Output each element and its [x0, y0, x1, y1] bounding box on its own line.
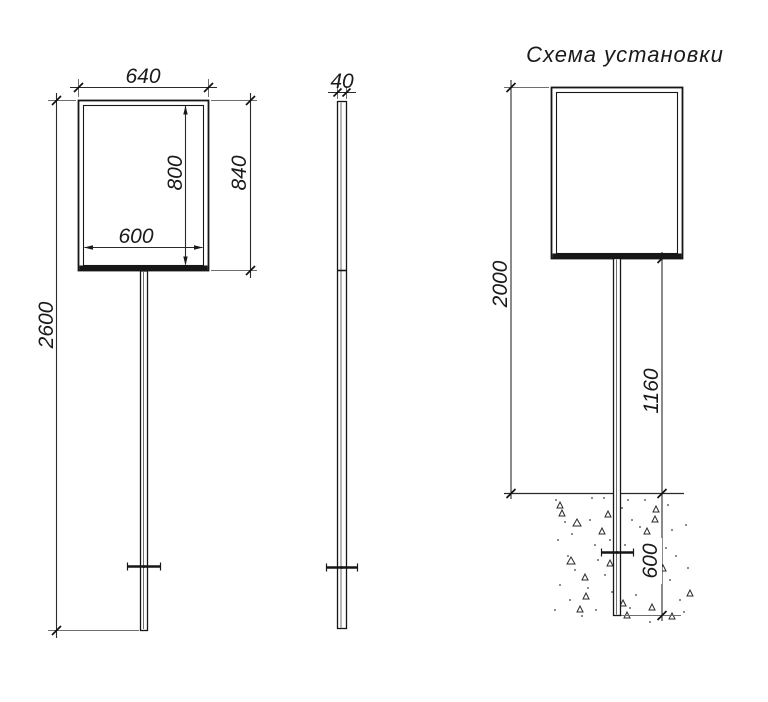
installation-view: Схема установки [489, 42, 724, 623]
dim-label-height-outer: 840 [228, 155, 251, 190]
dim-label-embedment-depth: 600 [639, 543, 662, 578]
installation-frame-bottom-band [553, 254, 682, 259]
front-dimension-ticks [52, 83, 255, 635]
side-profile [338, 102, 347, 629]
installation-post [614, 259, 621, 616]
installation-extension-lines [504, 88, 681, 616]
dim-label-height-inner: 800 [164, 155, 187, 190]
sign-post-drawing: 640 840 800 600 2600 40 Схема установки [0, 0, 768, 702]
installation-frame-inner [557, 93, 678, 254]
dim-label-total-height: 2600 [35, 301, 58, 349]
installation-frame-outer [552, 88, 683, 259]
dim-label-above-ground: 2000 [489, 260, 512, 308]
soil-texture [554, 497, 693, 623]
dim-label-width-inner: 600 [118, 225, 153, 248]
sign-frame-bottom-band [80, 266, 208, 271]
installation-title: Схема установки [526, 42, 724, 67]
front-post [141, 271, 148, 631]
front-view: 640 840 800 600 2600 [35, 65, 257, 638]
dim-label-width-outer: 640 [125, 65, 160, 88]
side-view: 40 [327, 70, 358, 629]
technical-drawing-canvas: 640 840 800 600 2600 40 Схема установки [0, 0, 768, 702]
dim-label-thickness: 40 [330, 70, 354, 93]
dim-label-post-above-ground: 1160 [640, 368, 663, 413]
